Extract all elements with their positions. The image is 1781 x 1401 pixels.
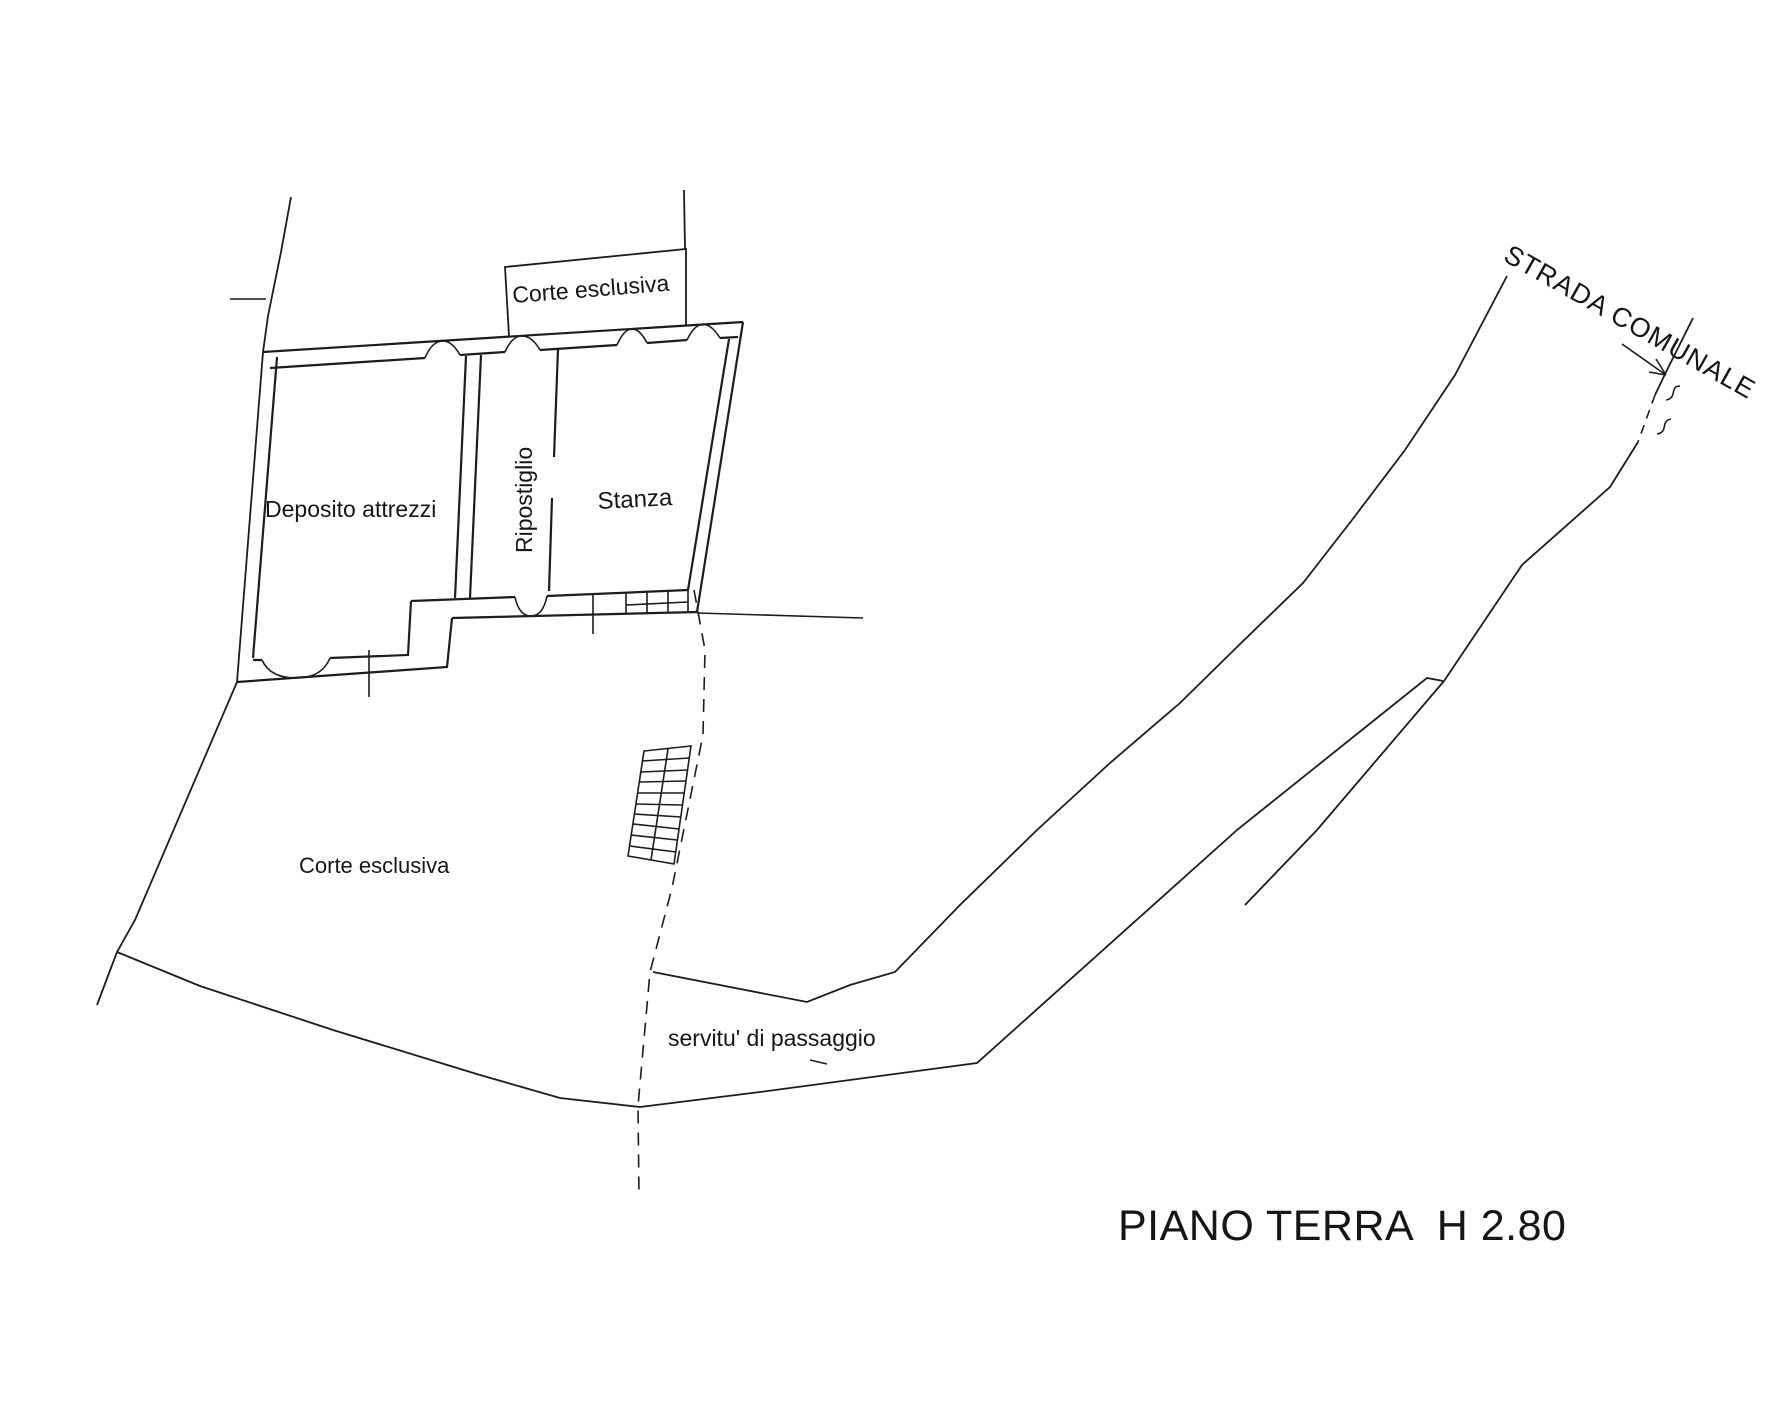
label-tool-storage: Deposito attrezzi xyxy=(265,496,436,522)
courtyard-top-stub-line xyxy=(684,190,685,249)
boundary-line-west xyxy=(97,197,291,1005)
floor-plan-drawing: Corte esclusiva Deposito attrezzi Ripost… xyxy=(0,0,1781,1401)
floor-plan-page: Corte esclusiva Deposito attrezzi Ripost… xyxy=(0,0,1781,1401)
label-floor-title: PIANO TERRA H 2.80 xyxy=(1118,1202,1566,1250)
label-room: Stanza xyxy=(597,484,674,515)
label-closet: Ripostiglio xyxy=(511,447,537,553)
passage-upper-line xyxy=(653,276,1507,1002)
road-survey-mark-2 xyxy=(1657,419,1671,434)
label-easement: servitu' di passaggio xyxy=(668,1025,876,1051)
property-boundary-south xyxy=(117,276,1507,1107)
property-boundary-left xyxy=(97,197,291,1005)
labels: Corte esclusiva Deposito attrezzi Ripost… xyxy=(265,239,1761,1250)
wedge-right-line xyxy=(1245,681,1444,905)
wall-ripostiglio-stanza xyxy=(549,349,558,591)
window-stanza xyxy=(626,590,688,614)
wall-deposito-ripostiglio xyxy=(455,355,481,598)
label-courtyard-top: Corte esclusiva xyxy=(511,270,670,308)
courtyard-top-outline xyxy=(505,190,686,336)
wall-right-inner xyxy=(688,339,729,590)
easement-small-tick xyxy=(810,1060,827,1064)
stairs-treads xyxy=(630,758,689,852)
wall-bottom-stanza-outer xyxy=(452,612,697,618)
label-courtyard-main: Corte esclusiva xyxy=(299,853,450,878)
wall-top-outer xyxy=(263,322,743,352)
stairs xyxy=(628,746,691,864)
survey-line-east xyxy=(697,613,863,618)
road-outline xyxy=(1444,318,1693,681)
label-road: STRADA COMUNALE xyxy=(1499,239,1761,405)
wall-bottom-deposito-inner xyxy=(253,601,411,660)
wall-bottom-deposito-outer xyxy=(237,618,452,682)
road-survey-mark-1 xyxy=(1666,386,1680,400)
window-arcs-ripostiglio xyxy=(515,596,547,616)
road-right-edge-bottom xyxy=(1444,442,1638,681)
wall-top-inner-segments xyxy=(270,337,738,368)
wall-right-outer xyxy=(697,322,743,612)
road-right-edge-dashed xyxy=(1638,395,1655,442)
